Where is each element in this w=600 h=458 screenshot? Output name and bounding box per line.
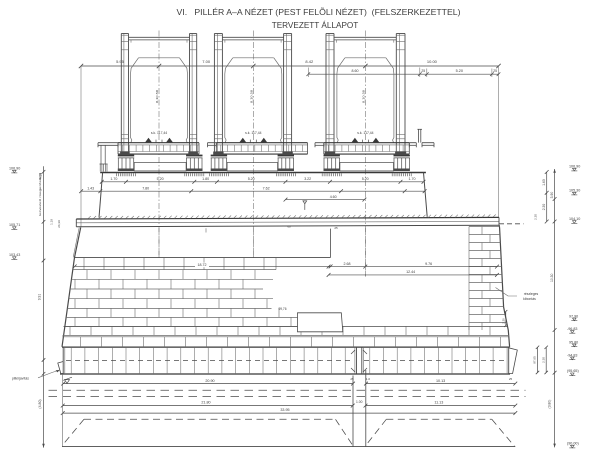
svg-text:60: 60: [287, 225, 291, 229]
svg-text:4.60: 4.60: [330, 195, 337, 199]
svg-text:9.91: 9.91: [38, 294, 42, 301]
svg-text:2.30: 2.30: [542, 204, 546, 211]
svg-text:1.0: 1.0: [366, 377, 371, 381]
svg-text:2.30: 2.30: [541, 357, 545, 363]
svg-text:pillérjavítás: pillérjavítás: [12, 377, 29, 381]
svg-text:2.68: 2.68: [344, 262, 351, 266]
svg-text:8.10.58: 8.10.58: [249, 89, 253, 103]
svg-text:1.00: 1.00: [356, 400, 363, 404]
svg-text:(4.80): (4.80): [38, 399, 42, 408]
svg-text:2.20: 2.20: [534, 214, 538, 220]
svg-text:8.10.58: 8.10.58: [155, 89, 159, 103]
svg-text:8.60: 8.60: [352, 69, 359, 73]
svg-text:97,90: 97,90: [569, 314, 578, 318]
svg-text:1.43: 1.43: [87, 187, 94, 191]
svg-text:tervezett megerősítés: tervezett megerősítés: [38, 172, 42, 216]
svg-text:103,43: 103,43: [9, 253, 20, 257]
svg-text:3.90: 3.90: [550, 192, 554, 199]
svg-text:2.30: 2.30: [501, 318, 505, 324]
svg-text:18.72: 18.72: [198, 263, 207, 267]
svg-text:7.00: 7.00: [202, 59, 211, 64]
svg-text:8.10.58: 8.10.58: [361, 89, 365, 103]
svg-text:5.95: 5.95: [116, 59, 125, 64]
svg-text:25: 25: [493, 69, 497, 73]
svg-text:9.76: 9.76: [425, 262, 432, 266]
svg-text:106,90: 106,90: [9, 167, 20, 171]
svg-text:(3.80): (3.80): [548, 400, 552, 409]
svg-text:7.80: 7.80: [142, 187, 149, 191]
svg-text:(95,65): (95,65): [567, 369, 579, 373]
svg-text:10.30: 10.30: [550, 273, 554, 282]
svg-text:5.20: 5.20: [157, 177, 164, 181]
svg-text:7.62: 7.62: [263, 187, 270, 191]
svg-text:104,10: 104,10: [569, 217, 580, 221]
svg-text:97,65: 97,65: [533, 356, 537, 364]
svg-text:s.k. 117,44: s.k. 117,44: [151, 131, 167, 135]
svg-text:20.90: 20.90: [205, 379, 214, 383]
svg-text:5.20: 5.20: [248, 177, 255, 181]
svg-text:-96,83: -96,83: [567, 327, 577, 331]
svg-text:s.k. 117,44: s.k. 117,44: [357, 131, 373, 135]
svg-text:8.42: 8.42: [305, 59, 314, 64]
svg-text:12.44: 12.44: [406, 270, 415, 274]
svg-text:1.19: 1.19: [50, 219, 54, 225]
svg-text:TERVEZETT ÁLLAPOT: TERVEZETT ÁLLAPOT: [272, 20, 359, 30]
svg-text:10.00: 10.00: [427, 59, 438, 64]
svg-text:1.70: 1.70: [409, 177, 416, 181]
svg-text:1.80: 1.80: [202, 177, 209, 181]
svg-text:5.20: 5.20: [362, 177, 369, 181]
svg-text:3.22: 3.22: [304, 177, 311, 181]
svg-text:s.k. 117,44: s.k. 117,44: [245, 131, 261, 135]
svg-text:részleges: részleges: [524, 292, 539, 296]
svg-text:33.95: 33.95: [280, 408, 289, 412]
svg-text:(90,00): (90,00): [567, 442, 579, 446]
svg-text:-94,83: -94,83: [567, 353, 577, 357]
svg-text:21.80: 21.80: [201, 400, 210, 404]
svg-text:105,71: 105,71: [9, 223, 20, 227]
svg-text:106,90: 106,90: [569, 165, 580, 169]
svg-text:VI. PILLÉR A–A NÉZET (PEST F: VI. PILLÉR A–A NÉZET (PEST FELÕLI NÉZET)…: [177, 7, 461, 17]
svg-text:99,76: 99,76: [279, 307, 287, 311]
svg-text:11.13: 11.13: [434, 400, 443, 404]
svg-text:25: 25: [421, 69, 425, 73]
svg-text:25: 25: [350, 377, 354, 381]
svg-text:5.20: 5.20: [456, 69, 463, 73]
svg-text:10.13: 10.13: [436, 379, 445, 383]
svg-text:kibontás: kibontás: [523, 297, 536, 301]
svg-text:1.70: 1.70: [110, 177, 117, 181]
svg-text:25: 25: [509, 377, 513, 381]
svg-text:95,80: 95,80: [569, 340, 578, 344]
svg-text:24,39: 24,39: [57, 220, 61, 228]
svg-text:25: 25: [334, 226, 338, 230]
svg-text:1.60: 1.60: [542, 179, 546, 186]
svg-text:105,30: 105,30: [569, 189, 580, 193]
